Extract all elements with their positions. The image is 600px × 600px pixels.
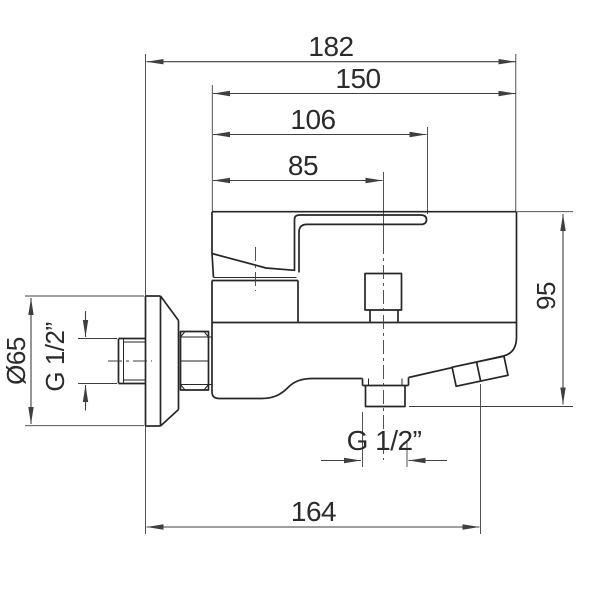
aerator-outline (452, 356, 508, 386)
lever-outline (212, 215, 427, 273)
dim-label-164: 164 (291, 496, 336, 527)
flange-top-taper (161, 296, 179, 321)
dimension-overall-depth: 182 (147, 31, 516, 62)
dimension-inlet-thread: G 1/2” (40, 311, 86, 411)
dim-label-inlet-thread: G 1/2” (40, 322, 70, 391)
outlet-thread-outline (366, 386, 406, 407)
lever-grip-end (212, 254, 214, 278)
dim-label-85: 85 (288, 150, 318, 181)
shower-outlet (363, 378, 409, 407)
dim-label-150: 150 (335, 63, 380, 94)
cartridge-housing (212, 247, 298, 323)
lever-handle (212, 215, 427, 278)
union-nut (181, 332, 213, 391)
flange-bottom-taper (161, 410, 179, 427)
dim-label-106: 106 (290, 104, 335, 135)
drawing-canvas: 182 150 106 85 95 Ø65 G 1/2” G 1/2” 164 (0, 0, 600, 600)
dim-label-95: 95 (531, 282, 561, 310)
body-lower-left-outline (212, 281, 363, 399)
dimension-body-width: 150 (213, 63, 516, 94)
dim-label-d65: Ø65 (1, 337, 31, 385)
dimension-handle-length: 106 (213, 104, 427, 135)
technical-drawing-page: 182 150 106 85 95 Ø65 G 1/2” G 1/2” 164 (0, 0, 600, 600)
dimension-spout-reach: 164 (147, 496, 480, 527)
dimension-body-height: 95 (531, 214, 563, 405)
dim-label-182: 182 (308, 31, 353, 62)
dimension-outlet-thread: G 1/2” (321, 425, 447, 461)
dim-label-outlet-thread: G 1/2” (347, 425, 422, 456)
dimension-outlet-offset: 85 (213, 150, 383, 181)
wall-flange (146, 296, 179, 426)
body-right-and-spout-underside (409, 212, 517, 378)
dimension-flange-diameter: Ø65 (1, 298, 31, 424)
aerator (452, 356, 508, 386)
